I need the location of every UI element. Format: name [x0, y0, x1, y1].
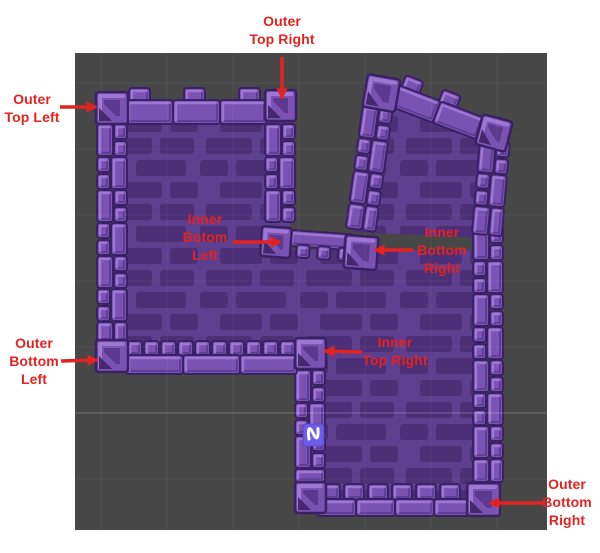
tile-corner-right-room-bl[interactable]	[295, 482, 326, 513]
tile-inner-botom-left[interactable]	[260, 226, 292, 258]
label-line: Outer	[1, 90, 63, 108]
tile-inner-bottom-right[interactable]	[343, 235, 378, 270]
label-line: Top Left	[1, 108, 63, 126]
label-inner-top-right: Inner Top Right	[358, 333, 432, 369]
label-line: Inner	[358, 333, 432, 351]
tile-inner-top-right[interactable]	[295, 338, 326, 369]
castle-tilemap	[75, 53, 547, 530]
tile-outer-bottom-right[interactable]	[467, 483, 500, 516]
label-line: Right	[408, 259, 476, 277]
label-line: Botom	[174, 228, 236, 246]
label-line: Outer	[2, 334, 66, 352]
label-inner-botom-left: Inner Botom Left	[174, 210, 236, 264]
label-outer-top-right: Outer Top Right	[248, 12, 316, 48]
diagram-stage: Outer Top Left Outer Top Right Inner Bot…	[0, 0, 600, 553]
label-line: Bottom	[2, 352, 66, 370]
label-line: Top Right	[248, 30, 316, 48]
label-line: Outer	[248, 12, 316, 30]
label-inner-bottom-right: Inner Bottom Right	[408, 223, 476, 277]
label-outer-bottom-left: Outer Bottom Left	[2, 334, 66, 388]
label-line: Bottom	[408, 241, 476, 259]
label-line: Bottom	[535, 493, 599, 511]
squiggle-sprite-icon[interactable]	[303, 424, 324, 446]
label-line: Left	[2, 370, 66, 388]
label-line: Inner	[174, 210, 236, 228]
tile-tower-top-right	[475, 114, 513, 152]
label-line: Inner	[408, 223, 476, 241]
scene-canvas[interactable]	[75, 53, 547, 530]
label-line: Left	[174, 246, 236, 264]
label-line: Right	[535, 511, 599, 529]
label-line: Outer	[535, 475, 599, 493]
tile-tower-top-left	[362, 74, 400, 112]
label-outer-top-left: Outer Top Left	[1, 90, 63, 126]
label-line: Top Right	[358, 351, 432, 369]
label-outer-bottom-right: Outer Bottom Right	[535, 475, 599, 529]
tile-outer-top-right[interactable]	[265, 90, 296, 121]
